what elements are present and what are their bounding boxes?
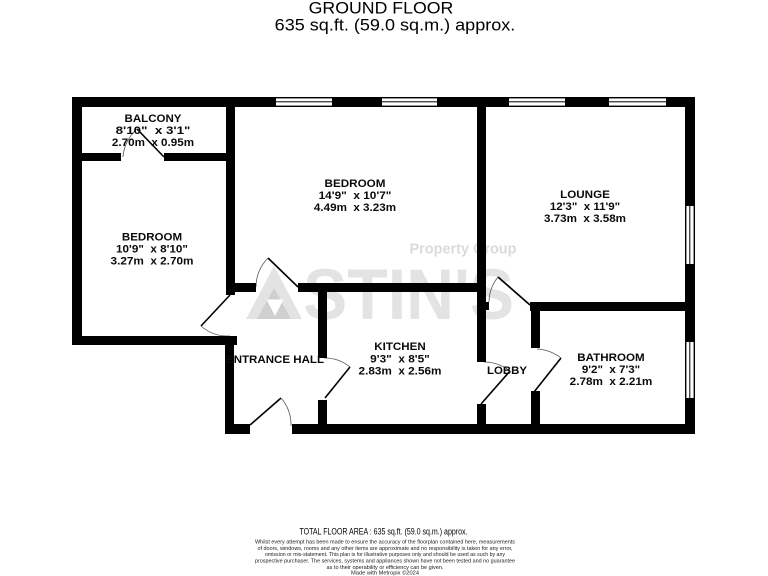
svg-text:omission or mis-statement. Thi: omission or mis-statement. This plan is …: [265, 552, 505, 558]
svg-text:4.49m x 3.23m: 4.49m x 3.23m: [314, 202, 396, 214]
svg-text:ENTRANCE HALL: ENTRANCE HALL: [226, 354, 324, 366]
svg-text:GROUND FLOOR: GROUND FLOOR: [309, 0, 454, 18]
svg-text:2.83m x 2.56m: 2.83m x 2.56m: [359, 366, 442, 378]
svg-text:BEDROOM: BEDROOM: [325, 178, 386, 190]
svg-text:10'9" x 8'10": 10'9" x 8'10": [116, 244, 188, 256]
svg-text:9'3" x 8'5": 9'3" x 8'5": [370, 354, 430, 366]
svg-text:Whilst every attempt has been: Whilst every attempt has been made to en…: [255, 540, 515, 546]
svg-text:prospective purchaser. The ser: prospective purchaser. The services, sys…: [255, 559, 515, 565]
svg-text:12'3" x 11'9": 12'3" x 11'9": [550, 201, 620, 213]
svg-text:8'10" x 3'1": 8'10" x 3'1": [116, 125, 191, 137]
svg-text:635 sq.ft. (59.0 sq.m.) approx: 635 sq.ft. (59.0 sq.m.) approx.: [275, 17, 516, 35]
svg-text:Made with Metropix ©2024: Made with Metropix ©2024: [351, 569, 419, 576]
svg-text:Property Group: Property Group: [410, 241, 517, 258]
svg-text:3.27m x 2.70m: 3.27m x 2.70m: [111, 256, 194, 268]
svg-text:3.73m x 3.58m: 3.73m x 3.58m: [544, 213, 626, 225]
svg-text:LOUNGE: LOUNGE: [560, 189, 610, 201]
svg-text:KITCHEN: KITCHEN: [374, 341, 425, 353]
svg-text:14'9" x 10'7": 14'9" x 10'7": [319, 190, 392, 202]
svg-text:2.78m x 2.21m: 2.78m x 2.21m: [570, 376, 653, 388]
svg-text:BEDROOM: BEDROOM: [122, 232, 182, 244]
svg-text:of doors, windows, rooms and a: of doors, windows, rooms and any other i…: [258, 546, 514, 552]
svg-text:BATHROOM: BATHROOM: [577, 352, 644, 364]
svg-text:LOBBY: LOBBY: [487, 365, 528, 377]
svg-text:2.70m x 0.95m: 2.70m x 0.95m: [112, 137, 194, 149]
svg-text:TOTAL FLOOR AREA : 635 sq.ft.: TOTAL FLOOR AREA : 635 sq.ft. (59.0 sq.m…: [300, 527, 468, 537]
svg-text:9'2" x 7'3": 9'2" x 7'3": [582, 364, 640, 376]
svg-text:BALCONY: BALCONY: [125, 113, 183, 125]
